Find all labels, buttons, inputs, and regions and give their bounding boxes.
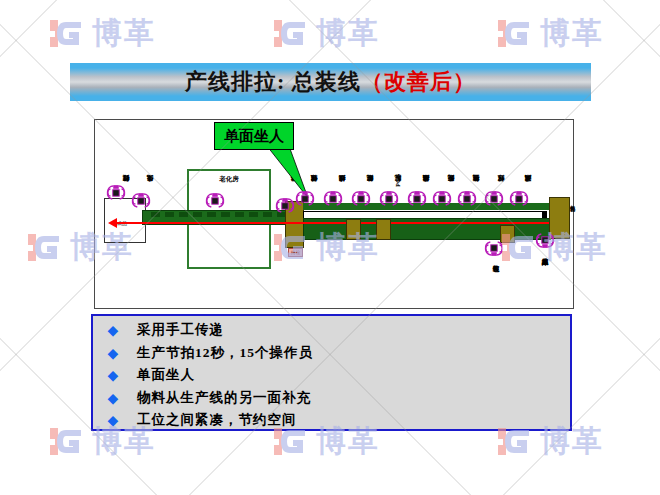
diamond-bullet-icon: ◆ <box>103 345 123 361</box>
station-label: 装配外壳 <box>447 147 454 187</box>
station-label: 整机检测 <box>472 147 479 187</box>
material-flow-line <box>114 222 554 224</box>
diamond-bullet-icon: ◆ <box>103 367 123 383</box>
diamond-bullet-icon: ◆ <box>103 322 123 338</box>
fixture-box <box>346 219 361 240</box>
station-label: 排针打印机 <box>122 137 129 187</box>
belt-dash <box>263 212 272 217</box>
fixture-box <box>376 219 391 240</box>
operator-icon <box>507 190 531 207</box>
station-label: 装配组件 <box>366 137 373 187</box>
brand-watermark-text: 博革 <box>92 18 156 48</box>
slide-title-suffix: （改善后） <box>361 69 476 94</box>
belt-dash <box>193 212 202 217</box>
operator-icon <box>455 190 479 207</box>
station-label: 成品测试 <box>524 137 531 187</box>
operator-icon <box>482 240 506 257</box>
operator-icon <box>104 184 128 201</box>
brand-logo-icon <box>26 228 64 266</box>
operator-icon <box>321 190 345 207</box>
slide-title: 产线排拉: 总装线（改善后） <box>185 67 476 97</box>
belt-dash <box>151 212 160 217</box>
line-layout-diagram: 老化房 成品 待检 包装台 单面坐人 排针打印机壳体上线贴标上料锁付螺丝排线焊接… <box>94 119 574 309</box>
callout-label: 单面坐人 <box>224 127 284 146</box>
slide-title-main: 产线排拉: 总装线 <box>185 69 361 94</box>
brand-watermark: 博革 <box>496 14 604 52</box>
brand-watermark: 博革 <box>48 14 156 52</box>
operator-icon <box>349 190 373 207</box>
slide: { "watermark": { "brand": "博革" }, "title… <box>0 0 660 495</box>
operator-icon <box>405 190 429 207</box>
belt-dash <box>221 212 230 217</box>
key-point-text: 单面坐人 <box>137 366 195 384</box>
key-point-text: 采用手工传递 <box>137 321 224 339</box>
station-label: 排线焊接 <box>338 133 345 187</box>
belt-dash <box>249 212 258 217</box>
packing-side-label: 包装台 <box>570 201 576 241</box>
diamond-bullet-icon: ◆ <box>103 412 123 428</box>
key-point-row: ◆采用手工传递 <box>103 319 570 342</box>
operator-icon <box>203 192 227 209</box>
key-point-row: ◆工位之间紧凑，节约空间 <box>103 409 570 432</box>
brand-logo-icon <box>272 14 310 52</box>
station-label: 打螺丝 <box>497 141 504 187</box>
belt-dash <box>207 212 216 217</box>
key-point-row: ◆物料从生产线的另一面补充 <box>103 387 570 410</box>
key-point-text: 生产节拍12秒，15个操作员 <box>137 344 313 362</box>
operator-icon <box>430 190 454 207</box>
belt-dash <box>165 212 174 217</box>
station-label: 壳体上线 <box>146 140 153 187</box>
brand-watermark-text: 博革 <box>540 18 604 48</box>
key-point-row: ◆生产节拍12秒，15个操作员 <box>103 342 570 365</box>
key-point-row: ◆单面坐人 <box>103 364 570 387</box>
belt-dash <box>179 212 188 217</box>
bottom-station-label: 检查包装 <box>493 260 500 300</box>
key-point-text: 工位之间紧凑，节约空间 <box>137 411 297 429</box>
diamond-bullet-icon: ◆ <box>103 390 123 406</box>
operator-icon <box>129 192 153 209</box>
station-label: 装配PCB <box>394 133 401 187</box>
key-points-panel: ◆采用手工传递◆生产节拍12秒，15个操作员◆单面坐人◆物料从生产线的另一面补充… <box>91 314 572 431</box>
operator-icon <box>293 190 317 207</box>
brand-watermark: 博革 <box>272 14 380 52</box>
brand-logo-icon <box>48 422 86 460</box>
callout-single-side-seating: 单面坐人 <box>214 122 294 150</box>
slide-title-bar: 产线排拉: 总装线（改善后） <box>70 63 591 101</box>
bottom-station-label: 成品入库装箱 <box>542 253 549 303</box>
flow-arrowhead <box>108 218 117 228</box>
key-points-list: ◆采用手工传递◆生产节拍12秒，15个操作员◆单面坐人◆物料从生产线的另一面补充… <box>93 316 570 432</box>
label-chip: 待检 <box>288 248 303 257</box>
brand-watermark-text: 博革 <box>316 18 380 48</box>
operator-icon <box>533 232 557 249</box>
brand-logo-icon <box>496 14 534 52</box>
station-label: 半成品检测 <box>422 137 429 187</box>
brand-logo-icon <box>48 14 86 52</box>
belt-dash <box>235 212 244 217</box>
operator-icon <box>377 190 401 207</box>
key-point-text: 物料从生产线的另一面补充 <box>137 389 311 407</box>
operator-icon <box>482 190 506 207</box>
